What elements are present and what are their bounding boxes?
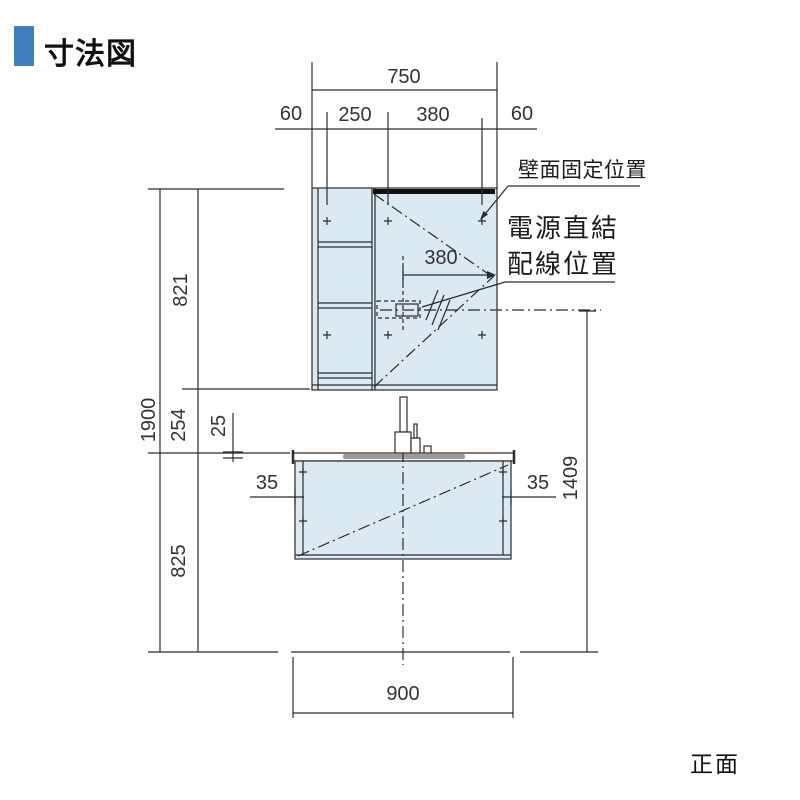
dim-750: 750 [387,67,420,87]
dim-254: 254 [169,408,189,441]
dim-821: 821 [171,273,191,306]
power-wiring-label-line1: 電源直結 [507,215,619,241]
dim-1409: 1409 [561,456,581,501]
wall-fix-position-label: 壁面固定位置 [518,160,647,181]
basin-rim [343,454,465,459]
dim-380-top: 380 [416,105,449,125]
mirror-cabinet-body [312,188,497,390]
dim-60-left: 60 [280,104,302,124]
dim-35-left: 35 [256,473,278,493]
drawing-canvas [0,0,800,800]
dim-825: 825 [169,544,189,577]
dim-900: 900 [386,684,419,704]
title-accent-bar [14,26,34,66]
dim-25: 25 [209,415,229,437]
front-view-label: 正面 [690,745,740,779]
dim-380-inner: 380 [424,248,457,268]
wall-mount-rail [373,189,495,194]
page-title: 寸法図 [44,29,137,73]
dim-250: 250 [338,105,371,125]
power-wiring-label-line2: 配線位置 [507,251,619,277]
dim-35-right: 35 [527,473,549,493]
faucet [395,397,431,453]
dim-60-right: 60 [511,104,533,124]
dim-1900: 1900 [139,398,159,443]
dimension-diagram: 寸法図 750 60 250 380 60 380 1900 821 254 2… [0,0,800,800]
